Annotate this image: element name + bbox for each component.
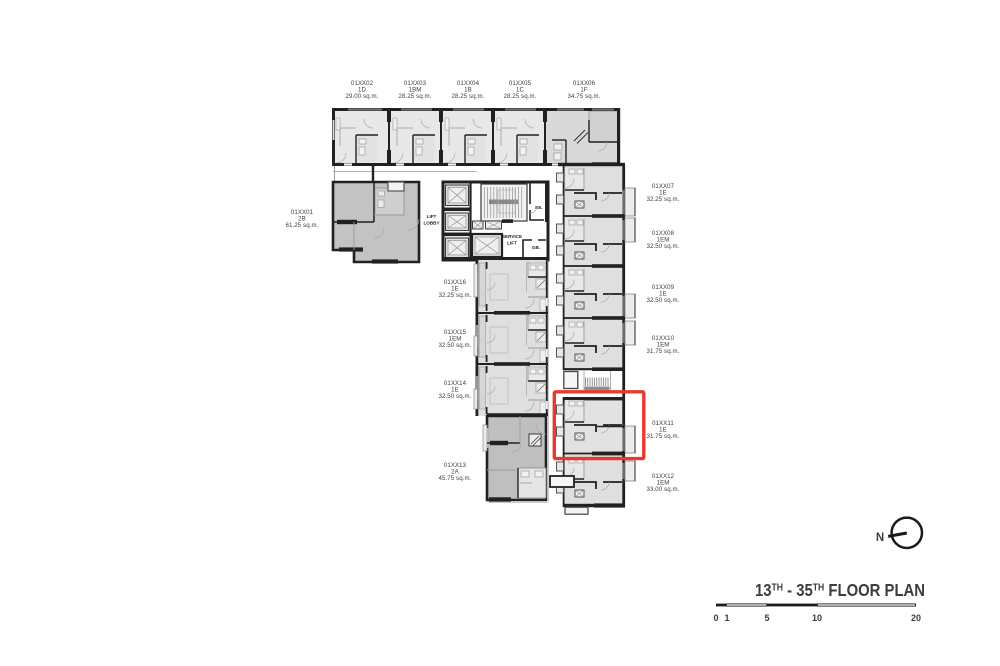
svg-text:10: 10 xyxy=(812,613,822,623)
svg-text:0: 0 xyxy=(713,613,718,623)
svg-text:32.50 sq.m.: 32.50 sq.m. xyxy=(647,243,680,250)
svg-text:28.25 sq.m.: 28.25 sq.m. xyxy=(504,93,537,100)
svg-text:32.25 sq.m.: 32.25 sq.m. xyxy=(647,196,680,203)
svg-text:LIFT: LIFT xyxy=(427,214,437,219)
svg-text:LOBBY: LOBBY xyxy=(423,221,439,226)
svg-text:45.75 sq.m.: 45.75 sq.m. xyxy=(439,475,472,482)
svg-text:32.50 sq.m.: 32.50 sq.m. xyxy=(647,297,680,304)
svg-text:1: 1 xyxy=(724,613,729,623)
svg-text:5: 5 xyxy=(764,613,769,623)
svg-text:32.25 sq.m.: 32.25 sq.m. xyxy=(439,292,472,299)
svg-text:32.50 sq.m.: 32.50 sq.m. xyxy=(439,393,472,400)
svg-text:34.75 sq.m.: 34.75 sq.m. xyxy=(568,93,601,100)
svg-text:20: 20 xyxy=(911,613,921,623)
svg-text:28.25 sq.m.: 28.25 sq.m. xyxy=(399,93,432,100)
svg-text:29.00 sq.m.: 29.00 sq.m. xyxy=(346,93,379,100)
svg-text:33.00 sq.m.: 33.00 sq.m. xyxy=(647,486,680,493)
svg-text:31.75 sq.m.: 31.75 sq.m. xyxy=(647,433,680,440)
svg-text:LIFT: LIFT xyxy=(507,241,517,246)
svg-text:N: N xyxy=(876,532,884,544)
svg-text:32.50 sq.m.: 32.50 sq.m. xyxy=(439,342,472,349)
svg-text:28.25 sq.m.: 28.25 sq.m. xyxy=(452,93,485,100)
svg-text:SERVICE: SERVICE xyxy=(502,234,522,239)
svg-text:31.75 sq.m.: 31.75 sq.m. xyxy=(647,348,680,355)
svg-text:61.25 sq.m.: 61.25 sq.m. xyxy=(286,222,319,229)
svg-text:GB.: GB. xyxy=(532,245,540,250)
